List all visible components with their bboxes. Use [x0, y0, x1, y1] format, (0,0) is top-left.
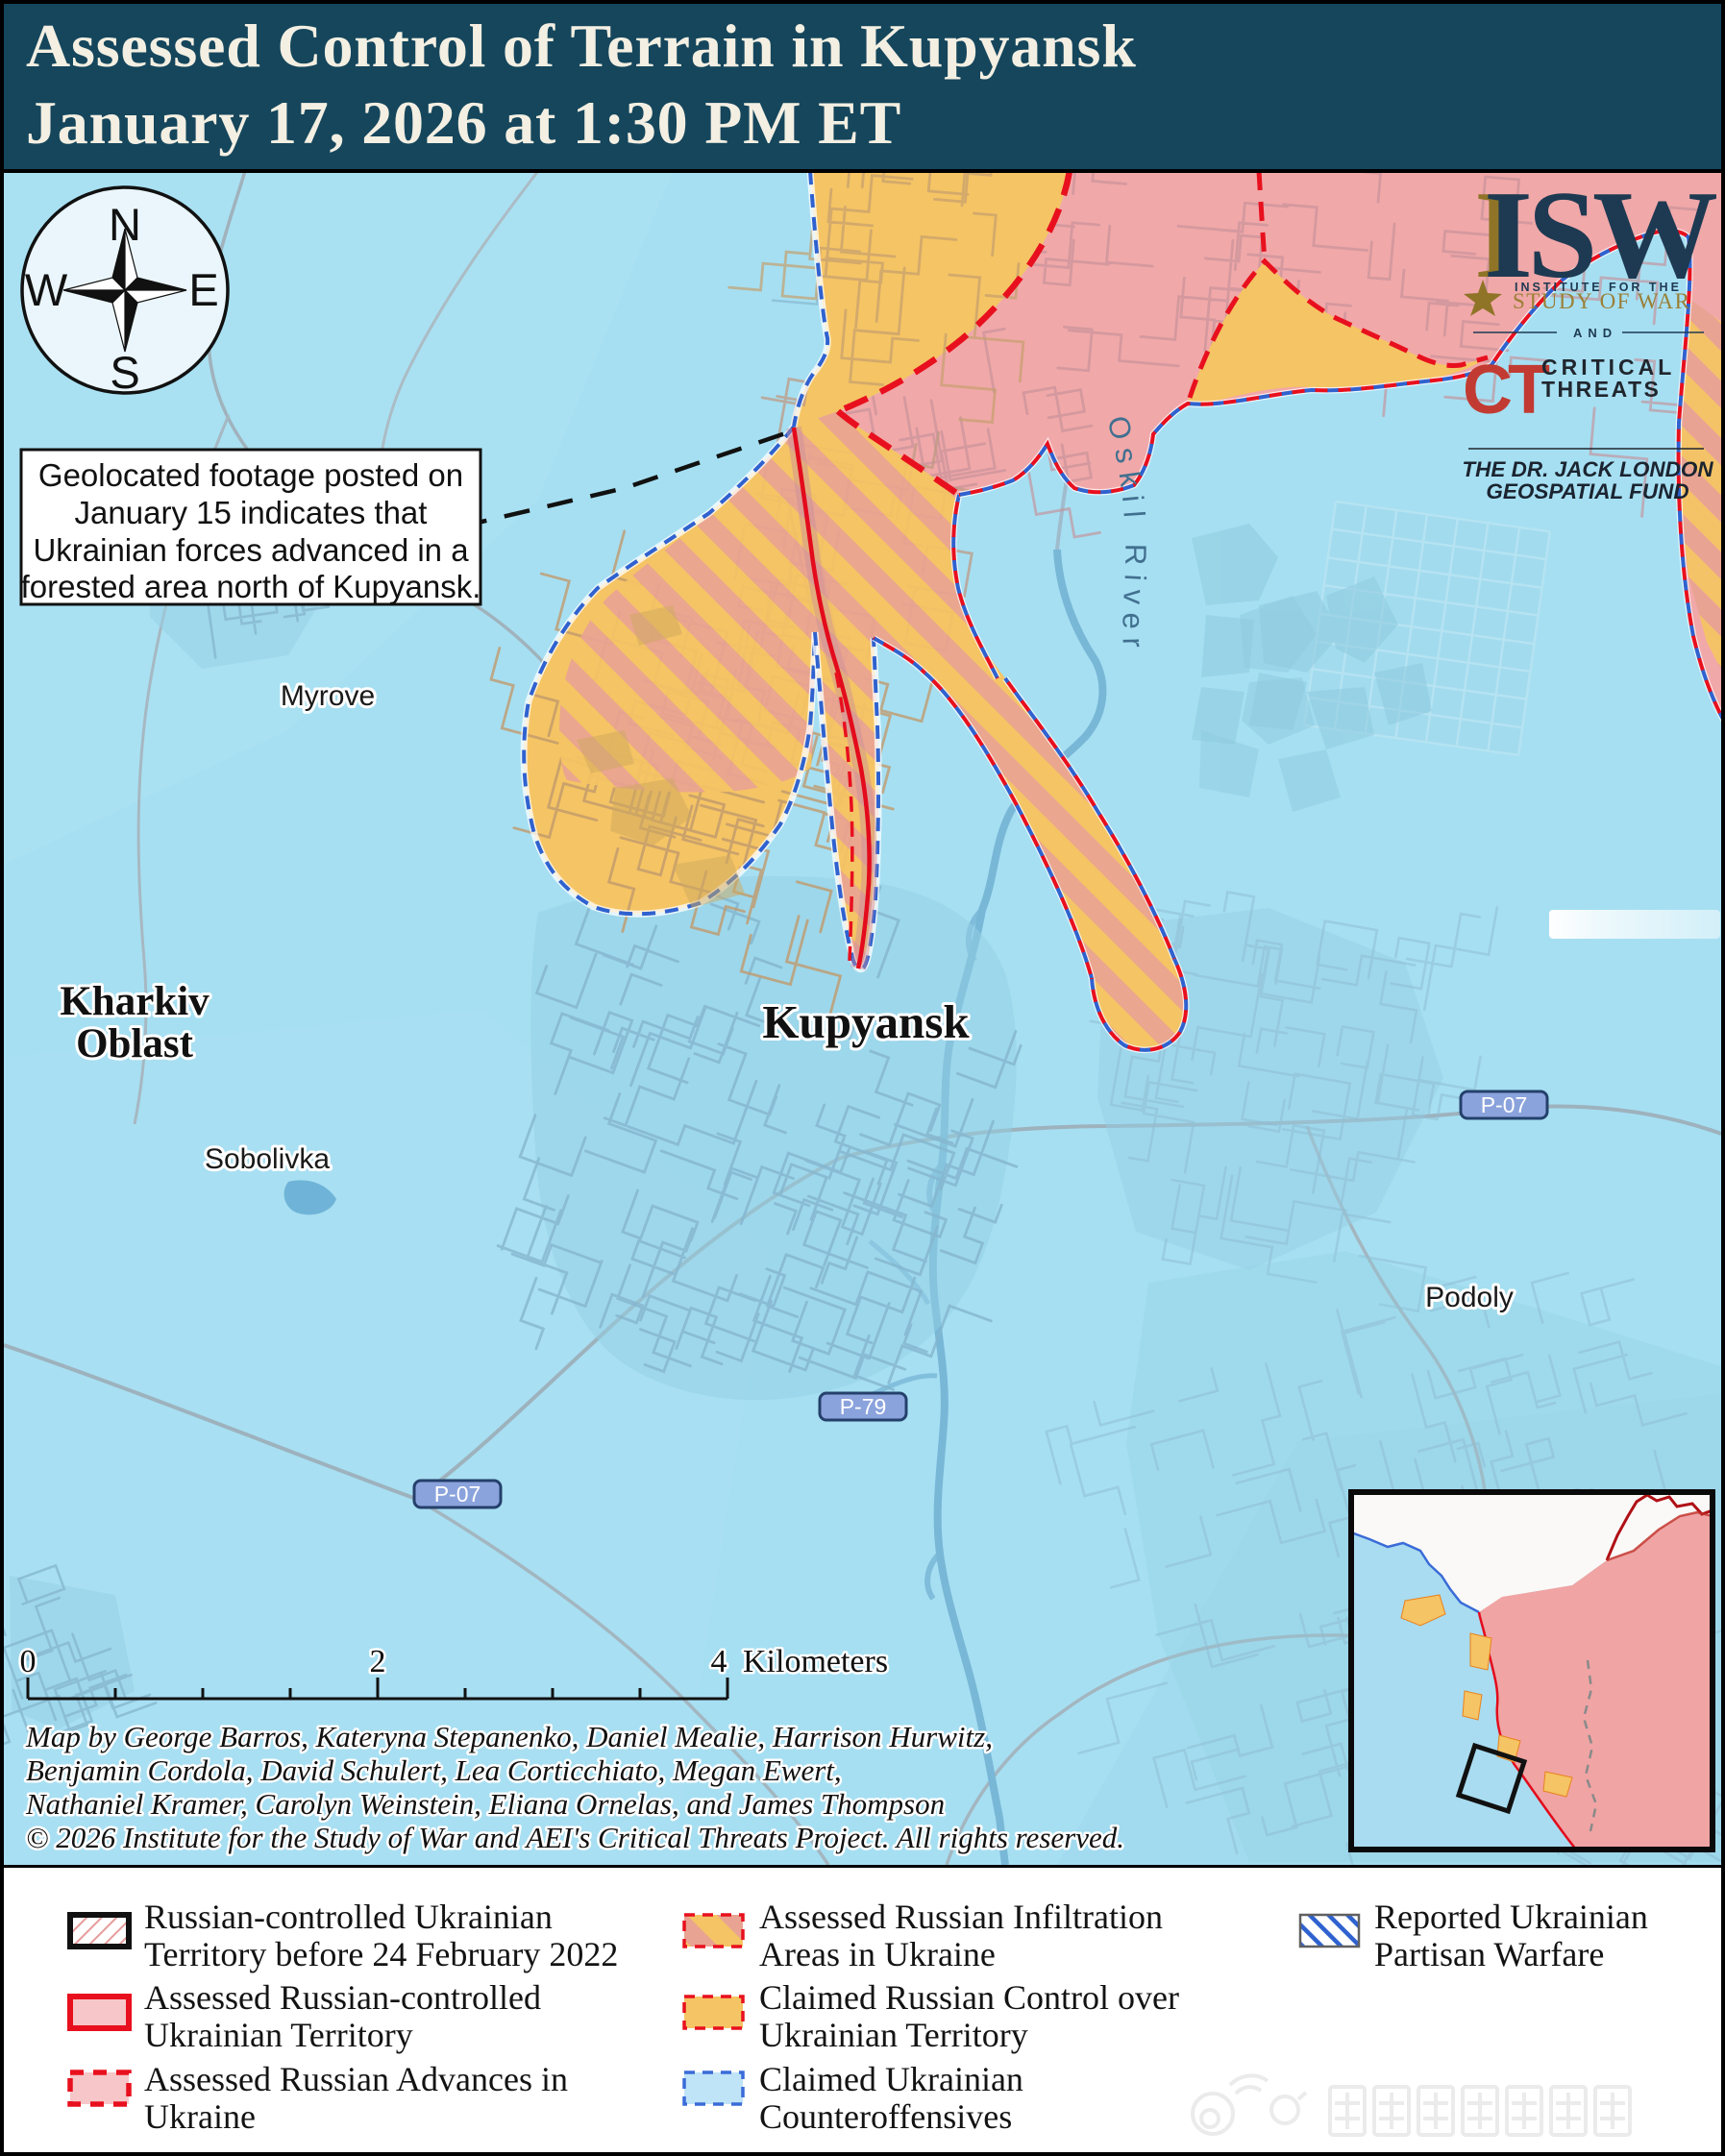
svg-text:Kharkiv: Kharkiv [60, 979, 209, 1024]
svg-text:Nathaniel Kramer, Carolyn Wein: Nathaniel Kramer, Carolyn Weinstein, Eli… [25, 1787, 945, 1821]
svg-text:THREATS: THREATS [1541, 377, 1661, 402]
svg-text:Areas in Ukraine: Areas in Ukraine [759, 1935, 996, 1973]
svg-text:Assessed Russian Advances in: Assessed Russian Advances in [144, 2060, 568, 2098]
svg-text:S: S [110, 347, 139, 398]
svg-text:forested area north of Kupyans: forested area north of Kupyansk. [21, 569, 481, 604]
svg-text:0: 0 [20, 1644, 37, 1679]
svg-text:CT: CT [1463, 352, 1550, 429]
svg-text:P-07: P-07 [1481, 1092, 1528, 1117]
svg-text:Assessed Russian Infiltration: Assessed Russian Infiltration [759, 1898, 1163, 1936]
svg-text:January 15 indicates that: January 15 indicates that [75, 495, 428, 530]
svg-text:P-07: P-07 [434, 1482, 481, 1507]
svg-text:Claimed Ukrainian: Claimed Ukrainian [759, 2060, 1023, 2098]
svg-text:Ukrainian forces advanced in a: Ukrainian forces advanced in a [33, 532, 469, 568]
svg-text:Counteroffensives: Counteroffensives [759, 2097, 1012, 2136]
svg-text:Oblast: Oblast [76, 1021, 194, 1066]
svg-text:Partisan Warfare: Partisan Warfare [1374, 1935, 1604, 1973]
svg-text:Assessed Russian-controlled: Assessed Russian-controlled [144, 1978, 541, 2017]
svg-text:Ukrainian Territory: Ukrainian Territory [144, 2016, 413, 2054]
svg-text:Map by George Barros, Kateryna: Map by George Barros, Kateryna Stepanenk… [25, 1720, 993, 1753]
svg-text:P-79: P-79 [840, 1394, 887, 1419]
svg-text:Assessed Control of Terrain in: Assessed Control of Terrain in Kupyansk [26, 12, 1137, 80]
svg-text:Benjamin Cordola, David Schule: Benjamin Cordola, David Schulert, Lea Co… [26, 1753, 842, 1787]
svg-text:4: 4 [711, 1644, 727, 1679]
svg-text:Kupyansk: Kupyansk [762, 995, 970, 1048]
svg-text:Russian-controlled Ukrainian: Russian-controlled Ukrainian [144, 1898, 553, 1936]
svg-text:Podoly: Podoly [1425, 1282, 1514, 1313]
svg-text:N: N [109, 199, 141, 250]
svg-text:Ukraine: Ukraine [144, 2097, 256, 2136]
svg-text:GEOSPATIAL FUND: GEOSPATIAL FUND [1486, 479, 1688, 503]
svg-text:January 17, 2026 at 1:30 PM ET: January 17, 2026 at 1:30 PM ET [26, 88, 901, 157]
svg-text:Territory before 24 February 2: Territory before 24 February 2022 [144, 1935, 618, 1973]
svg-text:STUDY OF WAR: STUDY OF WAR [1513, 289, 1690, 313]
svg-text:Kilometers: Kilometers [743, 1644, 888, 1679]
svg-text:Claimed Russian Control over: Claimed Russian Control over [759, 1978, 1179, 2017]
svg-text:Ukrainian Territory: Ukrainian Territory [759, 2016, 1028, 2054]
svg-text:Myrove: Myrove [281, 680, 375, 712]
svg-text:E: E [188, 264, 218, 315]
svg-text:Sobolivka: Sobolivka [205, 1143, 330, 1175]
svg-text:THE DR. JACK LONDON: THE DR. JACK LONDON [1462, 457, 1713, 481]
svg-text:Geolocated footage posted on: Geolocated footage posted on [38, 457, 463, 493]
svg-text:W: W [25, 264, 68, 315]
svg-text:Reported Ukrainian: Reported Ukrainian [1374, 1898, 1648, 1936]
svg-text:2: 2 [370, 1644, 386, 1679]
svg-text:© 2026 Institute for the Study: © 2026 Institute for the Study of War an… [26, 1821, 1124, 1854]
svg-text:AND: AND [1573, 326, 1617, 340]
